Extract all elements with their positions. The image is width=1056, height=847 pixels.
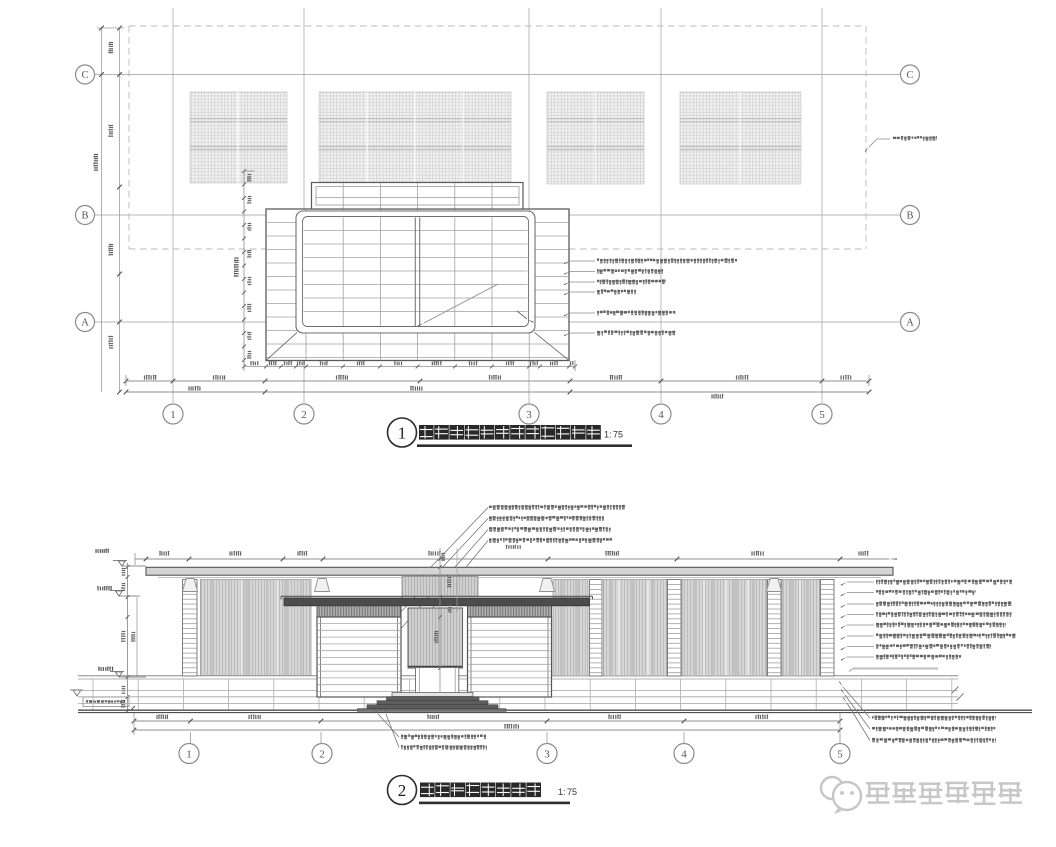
svg-text:B: B <box>81 211 88 222</box>
svg-text:4: 4 <box>681 749 687 761</box>
svg-text:5: 5 <box>837 749 843 761</box>
svg-text:1: 1 <box>186 749 192 761</box>
svg-text:3: 3 <box>544 749 550 761</box>
svg-text:B: B <box>906 211 913 222</box>
svg-text:1: 1 <box>170 409 176 421</box>
svg-text:1: 1 <box>398 424 407 443</box>
svg-text:2: 2 <box>319 749 325 761</box>
svg-text:C: C <box>81 70 88 81</box>
svg-text:4: 4 <box>658 409 664 421</box>
svg-text::: : <box>563 787 566 797</box>
svg-text:2: 2 <box>398 781 407 800</box>
svg-text:5: 5 <box>819 409 825 421</box>
svg-text:A: A <box>81 318 89 329</box>
svg-text:75: 75 <box>567 787 577 797</box>
svg-text:2: 2 <box>301 409 307 421</box>
svg-text::: : <box>609 430 612 440</box>
svg-text:A: A <box>906 318 914 329</box>
svg-text:C: C <box>906 70 913 81</box>
svg-text:75: 75 <box>613 430 623 440</box>
svg-text:3: 3 <box>526 409 532 421</box>
